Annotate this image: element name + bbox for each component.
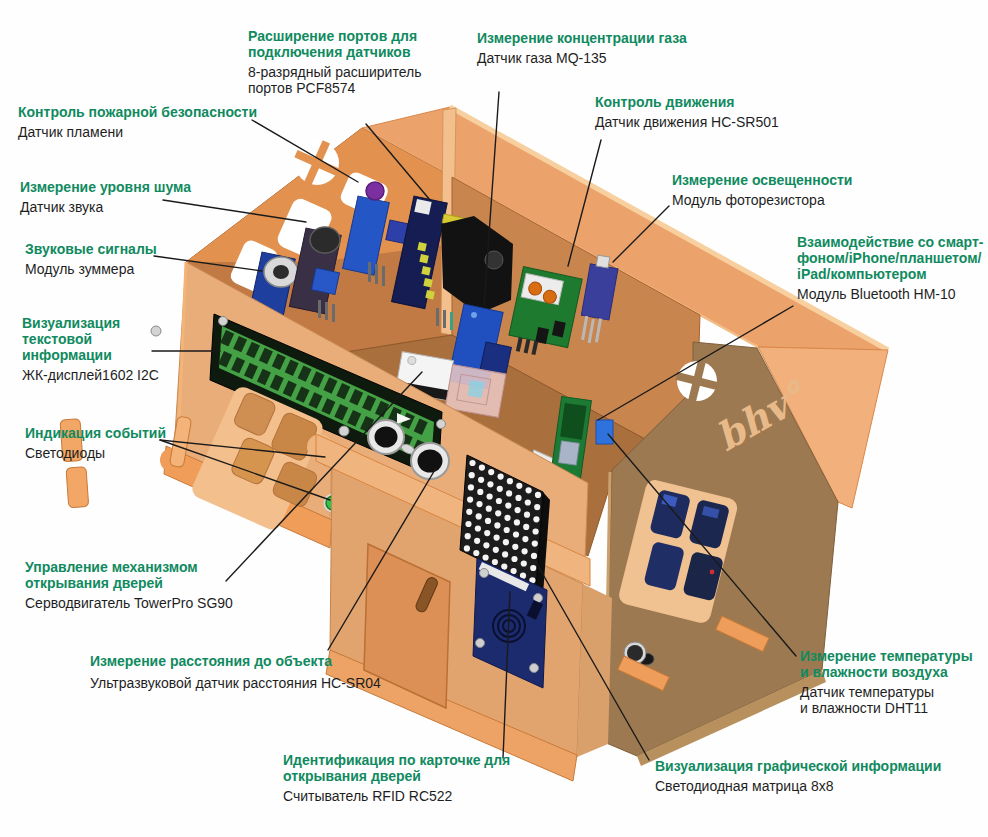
callout-buzzer: Звуковые сигналы Модуль зуммера [25,241,157,277]
ldr-cell [596,255,610,268]
callout-servo: Управление механизмомоткрывания дверей С… [25,559,233,611]
callout-light: Измерение освещенности Модуль фоторезист… [672,172,852,208]
flame-sensor-led [366,182,384,200]
callout-body: Светодиоды [25,445,166,461]
callout-title: Индикация событий [25,425,166,441]
callout-title: Измерение освещенности [672,172,852,188]
callout-title: Расширение портов дляподключения датчико… [248,28,421,60]
callout-gas: Измерение концентрации газа Датчик газа … [477,30,687,66]
callout-title: Визуализация графической информации [655,758,941,774]
callout-body: Модуль Bluetooth HM-10 [797,286,983,302]
callout-title: Визуализациятекстовойинформации [22,315,159,363]
led-through-window [710,570,715,575]
callout-lcd: Визуализациятекстовойинформации ЖК-диспл… [22,315,159,383]
callout-rfid: Идентификация по карточке дляоткрывания … [283,752,510,804]
callout-fire: Контроль пожарной безопасности Датчик пл… [18,104,257,140]
porch-side-gap [577,584,612,757]
callout-bluetooth: Взаимодействие со смарт-фоном/iPhone/пла… [797,234,983,302]
callout-body: Ультразвуковой датчик расстояния HC-SR04 [90,675,381,691]
callout-title: Контроль движения [595,94,779,110]
callout-title: Идентификация по карточке дляоткрывания … [283,752,510,784]
callout-body: Считыватель RFID RC522 [283,788,510,804]
dht11-module [596,420,613,444]
callout-body: 8-разрядный расширительпортов PCF8574 [248,64,421,96]
callout-body: Модуль фоторезистора [672,192,852,208]
callout-body: Модуль зуммера [25,261,157,277]
callout-distance: Измерение расстояния до объекта Ультразв… [90,653,381,691]
callout-title: Измерение уровня шума [20,179,191,195]
callout-noise: Измерение уровня шума Датчик звука [20,179,191,215]
callout-title: Взаимодействие со смарт-фоном/iPhone/пла… [797,234,983,282]
callout-dht11: Измерение температурыи влажности воздуха… [800,648,973,716]
callout-events: Индикация событий Светодиоды [25,425,166,461]
callout-led-matrix: Визуализация графической информации Свет… [655,758,941,794]
callout-body: Серводвигатель TowerPro SG90 [25,595,233,611]
callout-motion: Контроль движения Датчик движения HC-SR5… [595,94,779,130]
wood-tab [66,467,89,508]
callout-body: Светодиодная матрица 8x8 [655,778,941,794]
callout-title: Звуковые сигналы [25,241,157,257]
callout-body: Датчик движения HC-SR501 [595,114,779,130]
callout-title: Контроль пожарной безопасности [18,104,257,120]
callout-title: Измерение расстояния до объекта [90,653,381,669]
callout-body: Датчик газа MQ-135 [477,50,687,66]
callout-body: Датчик пламени [18,124,257,140]
callout-body: Датчик температурыи влажности DHT11 [800,684,973,716]
diagram-page: bhv° [0,0,988,837]
callout-body: Датчик звука [20,199,191,215]
callout-title: Измерение температурыи влажности воздуха [800,648,973,680]
callout-body: ЖК-дисплей1602 I2C [22,367,159,383]
callout-title: Управление механизмомоткрывания дверей [25,559,233,591]
callout-port-expander: Расширение портов дляподключения датчико… [248,28,421,96]
callout-title: Измерение концентрации газа [477,30,687,46]
